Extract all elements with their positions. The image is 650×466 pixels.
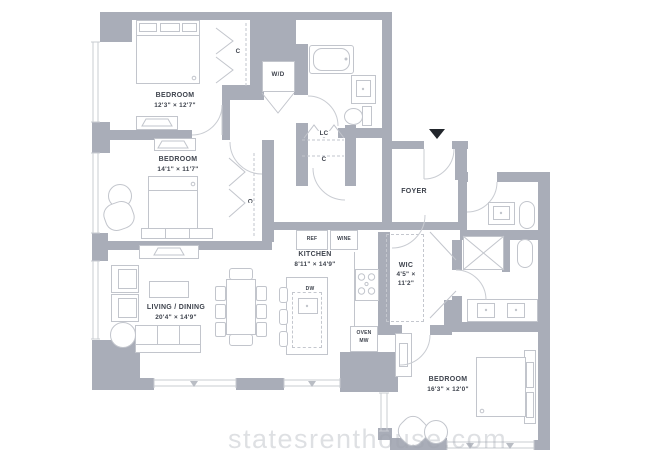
- bench-divider: [189, 228, 190, 239]
- wall: [430, 325, 444, 335]
- dining-chair: [256, 286, 267, 301]
- vanity-sink-basin: [507, 303, 525, 318]
- toilet: [517, 239, 533, 268]
- room-label-wic: WIC: [399, 262, 414, 269]
- wall: [262, 20, 296, 61]
- dishwasher-label: DW: [306, 287, 315, 292]
- pillow: [526, 392, 534, 418]
- dining-chair: [229, 334, 253, 346]
- room-label-bedroom-1: BEDROOM: [156, 92, 195, 99]
- island-sink: [298, 298, 318, 314]
- wall: [236, 378, 284, 390]
- wall: [138, 378, 154, 390]
- toilet-tank: [362, 106, 372, 126]
- room-dims-bedroom-1: 12'3" × 12'7": [154, 103, 196, 109]
- dining-chair: [256, 304, 267, 319]
- wall: [382, 141, 392, 225]
- watermark: statesrenthouse.com: [228, 426, 507, 453]
- vanity-sink-basin: [493, 206, 510, 220]
- dining-table: [226, 279, 256, 335]
- wall: [455, 148, 467, 180]
- wall: [388, 141, 424, 149]
- closet-label-bedroom-2: C: [246, 199, 252, 204]
- room-label-kitchen: KITCHEN: [298, 251, 331, 258]
- room-label-bedroom-3: BEDROOM: [429, 376, 468, 383]
- dining-chair: [229, 268, 253, 280]
- dining-chair: [215, 322, 226, 337]
- room-dims-living-dining: 20'4" × 14'9": [155, 315, 197, 321]
- dresser-3-front: [399, 343, 408, 367]
- wall: [497, 172, 550, 182]
- sofa: [135, 325, 201, 353]
- room-dims-kitchen: 8'11" × 14'9": [294, 262, 335, 268]
- washer-dryer-label: W/D: [272, 72, 285, 78]
- toilet-bowl: [344, 108, 363, 125]
- wall: [340, 352, 398, 392]
- hall-closet-label: C: [320, 157, 329, 163]
- entry-marker-icon: [429, 129, 445, 139]
- wall: [444, 300, 452, 335]
- wall: [294, 44, 308, 95]
- wall: [452, 141, 468, 149]
- stool: [279, 309, 288, 325]
- wall: [460, 322, 548, 332]
- armchair-seat: [118, 269, 137, 289]
- wall: [382, 20, 392, 141]
- pillow: [160, 23, 180, 32]
- room-dims-wic-line2: 11'2": [398, 281, 414, 287]
- room-dims-bedroom-3: 16'3" × 12'0": [427, 387, 469, 393]
- room-dims-bedroom-2: 14'1" × 11'7": [157, 167, 198, 173]
- bed-2: [148, 176, 198, 230]
- pillow: [182, 23, 197, 32]
- stool: [279, 287, 288, 303]
- sofa-divider: [179, 326, 180, 344]
- wall: [92, 340, 140, 390]
- bed-sheet-line: [148, 190, 198, 191]
- armchair: [100, 198, 138, 235]
- vanity-sink-basin: [477, 303, 495, 318]
- bed-sheet-line: [136, 35, 200, 36]
- wall: [296, 123, 308, 186]
- dining-chair: [256, 322, 267, 337]
- dresser-1: [136, 116, 178, 130]
- pillow: [526, 362, 534, 388]
- wall: [100, 12, 132, 42]
- refrigerator-label: REF: [307, 237, 318, 242]
- wall: [458, 180, 467, 230]
- bench: [141, 228, 213, 239]
- bed-3: [476, 357, 526, 417]
- toilet: [519, 201, 535, 229]
- stool: [279, 331, 288, 347]
- dining-chair: [215, 304, 226, 319]
- wall: [538, 172, 550, 450]
- linen-closet-label: LC: [318, 131, 331, 137]
- room-label-bedroom-2: BEDROOM: [159, 156, 198, 163]
- room-label-living-dining: LIVING / DINING: [147, 304, 205, 311]
- media-console: [139, 245, 199, 259]
- sofa-divider: [157, 326, 158, 344]
- wall: [452, 240, 462, 270]
- bathtub-basin: [313, 48, 350, 71]
- dining-chair: [215, 286, 226, 301]
- room-label-foyer: FOYER: [401, 188, 427, 195]
- oven-label: OVEN: [357, 331, 372, 336]
- wall: [268, 222, 460, 230]
- dresser-2: [154, 138, 196, 151]
- wall: [222, 100, 230, 140]
- wall: [250, 12, 262, 95]
- closet-label-bedroom-1: C: [236, 49, 241, 55]
- room-dims-wic-line1: 4'5" ×: [397, 272, 416, 278]
- stove: [355, 269, 379, 301]
- microwave-label: MW: [359, 339, 368, 344]
- sink-basin: [356, 80, 371, 97]
- wall: [338, 128, 382, 138]
- wall: [100, 12, 392, 20]
- wine-cooler-label: WINE: [337, 237, 351, 242]
- sofa-back-line: [136, 344, 200, 345]
- bench-divider: [165, 228, 166, 239]
- floor-plan: BEDROOM 12'3" × 12'7" BEDROOM 14'1" × 11…: [0, 0, 650, 466]
- wall: [222, 85, 264, 100]
- shower: [463, 236, 504, 270]
- pillow: [139, 23, 157, 32]
- armchair-seat: [118, 298, 137, 318]
- coffee-table: [149, 281, 189, 298]
- round-table: [110, 322, 136, 348]
